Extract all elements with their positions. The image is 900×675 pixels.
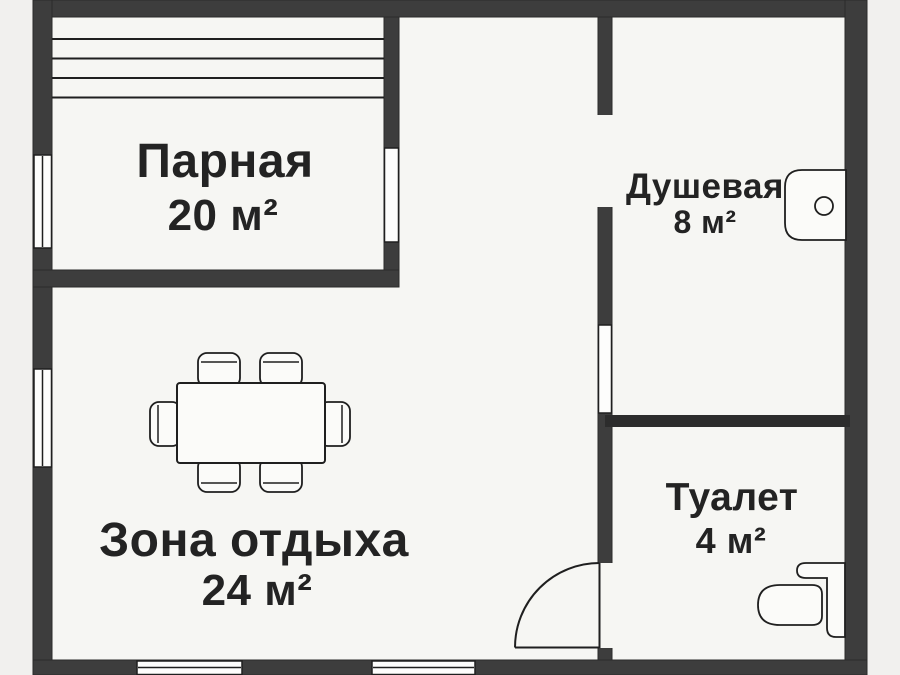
room-dushevaya-area: 8 м²	[673, 204, 736, 240]
sink-drain	[815, 197, 833, 215]
opening-central-wall	[599, 325, 612, 413]
floor-plan: Парная 20 м² Душевая 8 м² Зона отдыха 24…	[0, 0, 900, 675]
chair-top-left	[198, 353, 240, 387]
sink	[785, 170, 846, 240]
floor	[33, 0, 867, 675]
opening-parnaya	[385, 148, 399, 242]
room-tualet-label: Туалет	[666, 476, 799, 519]
room-tualet-area: 4 м²	[696, 520, 767, 561]
wall-left	[33, 0, 52, 675]
room-dushevaya-label: Душевая	[626, 167, 784, 206]
room-parnaya-area: 20 м²	[168, 191, 279, 240]
dining-table	[177, 383, 325, 463]
wall-parnaya-bottom	[33, 270, 399, 287]
room-parnaya-label: Парная	[136, 135, 313, 188]
wall-top	[33, 0, 867, 17]
wall-shower-toilet-divider	[605, 415, 850, 427]
chair-top-right	[260, 353, 302, 387]
toilet-bowl	[758, 585, 822, 625]
doorway-shower	[597, 115, 613, 207]
room-zona-otdyha-label: Зона отдыха	[99, 514, 409, 567]
wall-right	[845, 0, 867, 675]
room-zona-otdyha-area: 24 м²	[202, 566, 313, 615]
